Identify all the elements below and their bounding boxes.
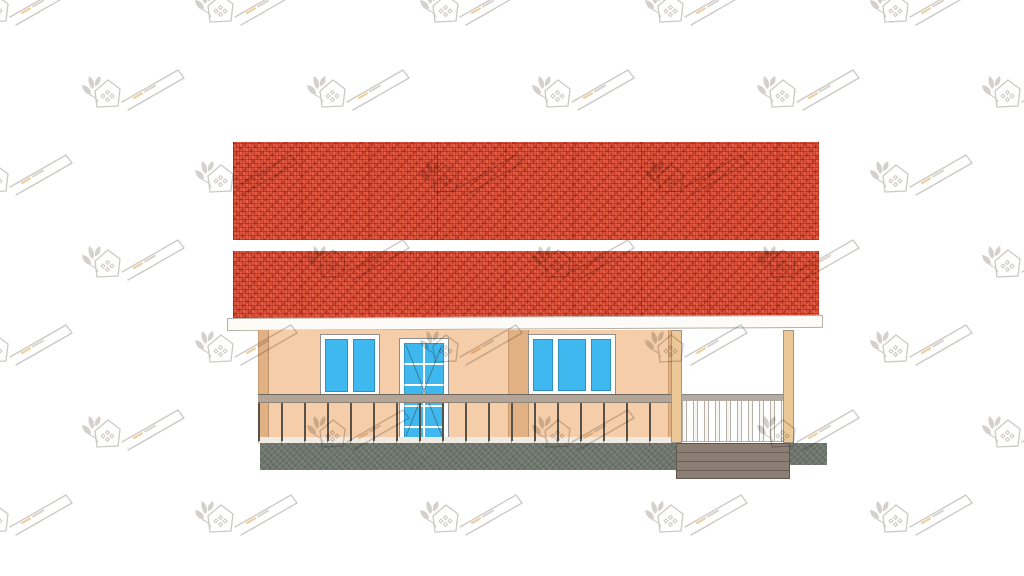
porch-post-right [783,330,794,443]
window-pane [558,339,587,391]
porch-post-left [671,330,682,443]
watermark-logo [645,485,755,547]
porch-railing [682,394,783,441]
watermark-logo [0,145,80,207]
watermark-logo [307,60,417,122]
watermark-logo [757,60,867,122]
concrete-plinth [260,443,676,470]
watermark-logo [0,315,80,377]
watermark-logo [870,0,980,37]
watermark-logo [195,485,305,547]
watermark-logo [982,60,1024,122]
watermark-logo [420,485,530,547]
veranda-railing [258,394,679,440]
watermark-logo [532,60,642,122]
elevation-canvas [0,0,1024,576]
watermark-logo [0,0,80,37]
railing-top-rail [258,394,679,403]
railing-balusters [258,403,679,441]
window-right [528,334,616,396]
watermark-logo [82,60,192,122]
porch-railing-top-rail [682,394,783,401]
roof-lower-band [233,251,819,318]
watermark-logo [82,400,192,462]
window-left [320,334,380,397]
roof-fascia [227,315,823,331]
watermark-logo [0,485,80,547]
window-pane [353,339,376,392]
porch-railing-balusters [682,401,783,442]
roof-upper-band [233,142,819,240]
concrete-plinth-right [790,443,827,465]
window-pane [325,339,348,392]
window-pane [591,339,611,391]
watermark-logo [870,145,980,207]
watermark-logo [870,485,980,547]
watermark-logo [982,230,1024,292]
wooden-steps [676,443,790,479]
watermark-logo [420,0,530,37]
watermark-logo [645,0,755,37]
watermark-logo [982,400,1024,462]
watermark-logo [195,0,305,37]
window-pane [533,339,553,391]
watermark-logo [870,315,980,377]
watermark-logo [82,230,192,292]
